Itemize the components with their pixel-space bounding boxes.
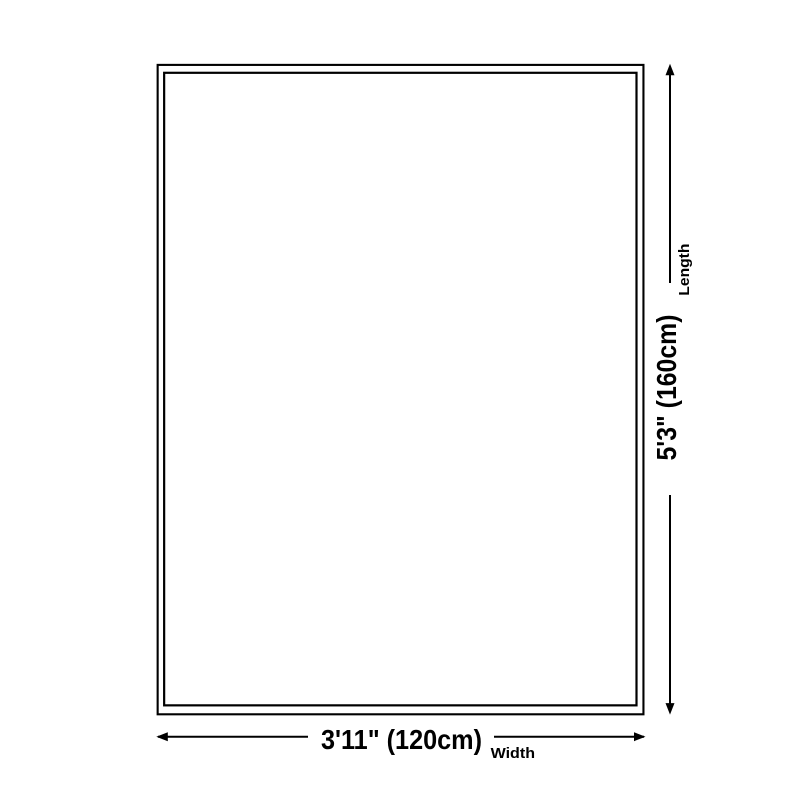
svg-text:Width: Width: [491, 745, 535, 762]
svg-text:Length: Length: [676, 244, 693, 296]
svg-text:3'11" (120cm): 3'11" (120cm): [321, 724, 482, 755]
svg-text:5'3" (160cm): 5'3" (160cm): [651, 315, 682, 461]
